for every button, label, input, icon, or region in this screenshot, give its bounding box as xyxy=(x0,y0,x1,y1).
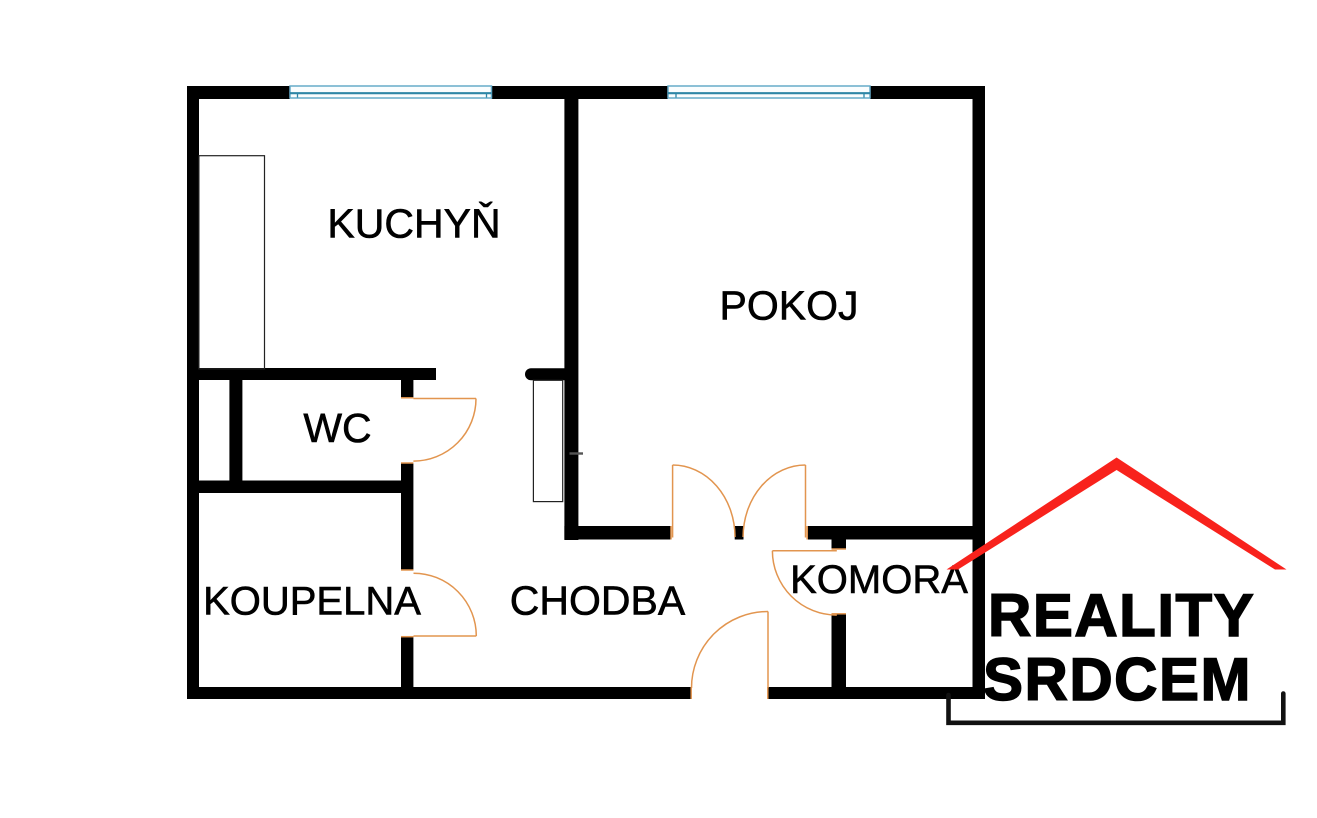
svg-text:REALITY: REALITY xyxy=(988,582,1255,649)
svg-text:KOUPELNA: KOUPELNA xyxy=(203,580,421,624)
svg-text:SRDCEM: SRDCEM xyxy=(983,646,1252,713)
svg-text:KOMORA: KOMORA xyxy=(790,558,968,602)
svg-text:WC: WC xyxy=(303,405,371,451)
svg-text:POKOJ: POKOJ xyxy=(720,282,859,328)
svg-text:KUCHYŇ: KUCHYŇ xyxy=(327,200,500,246)
svg-text:CHODBA: CHODBA xyxy=(510,578,686,624)
